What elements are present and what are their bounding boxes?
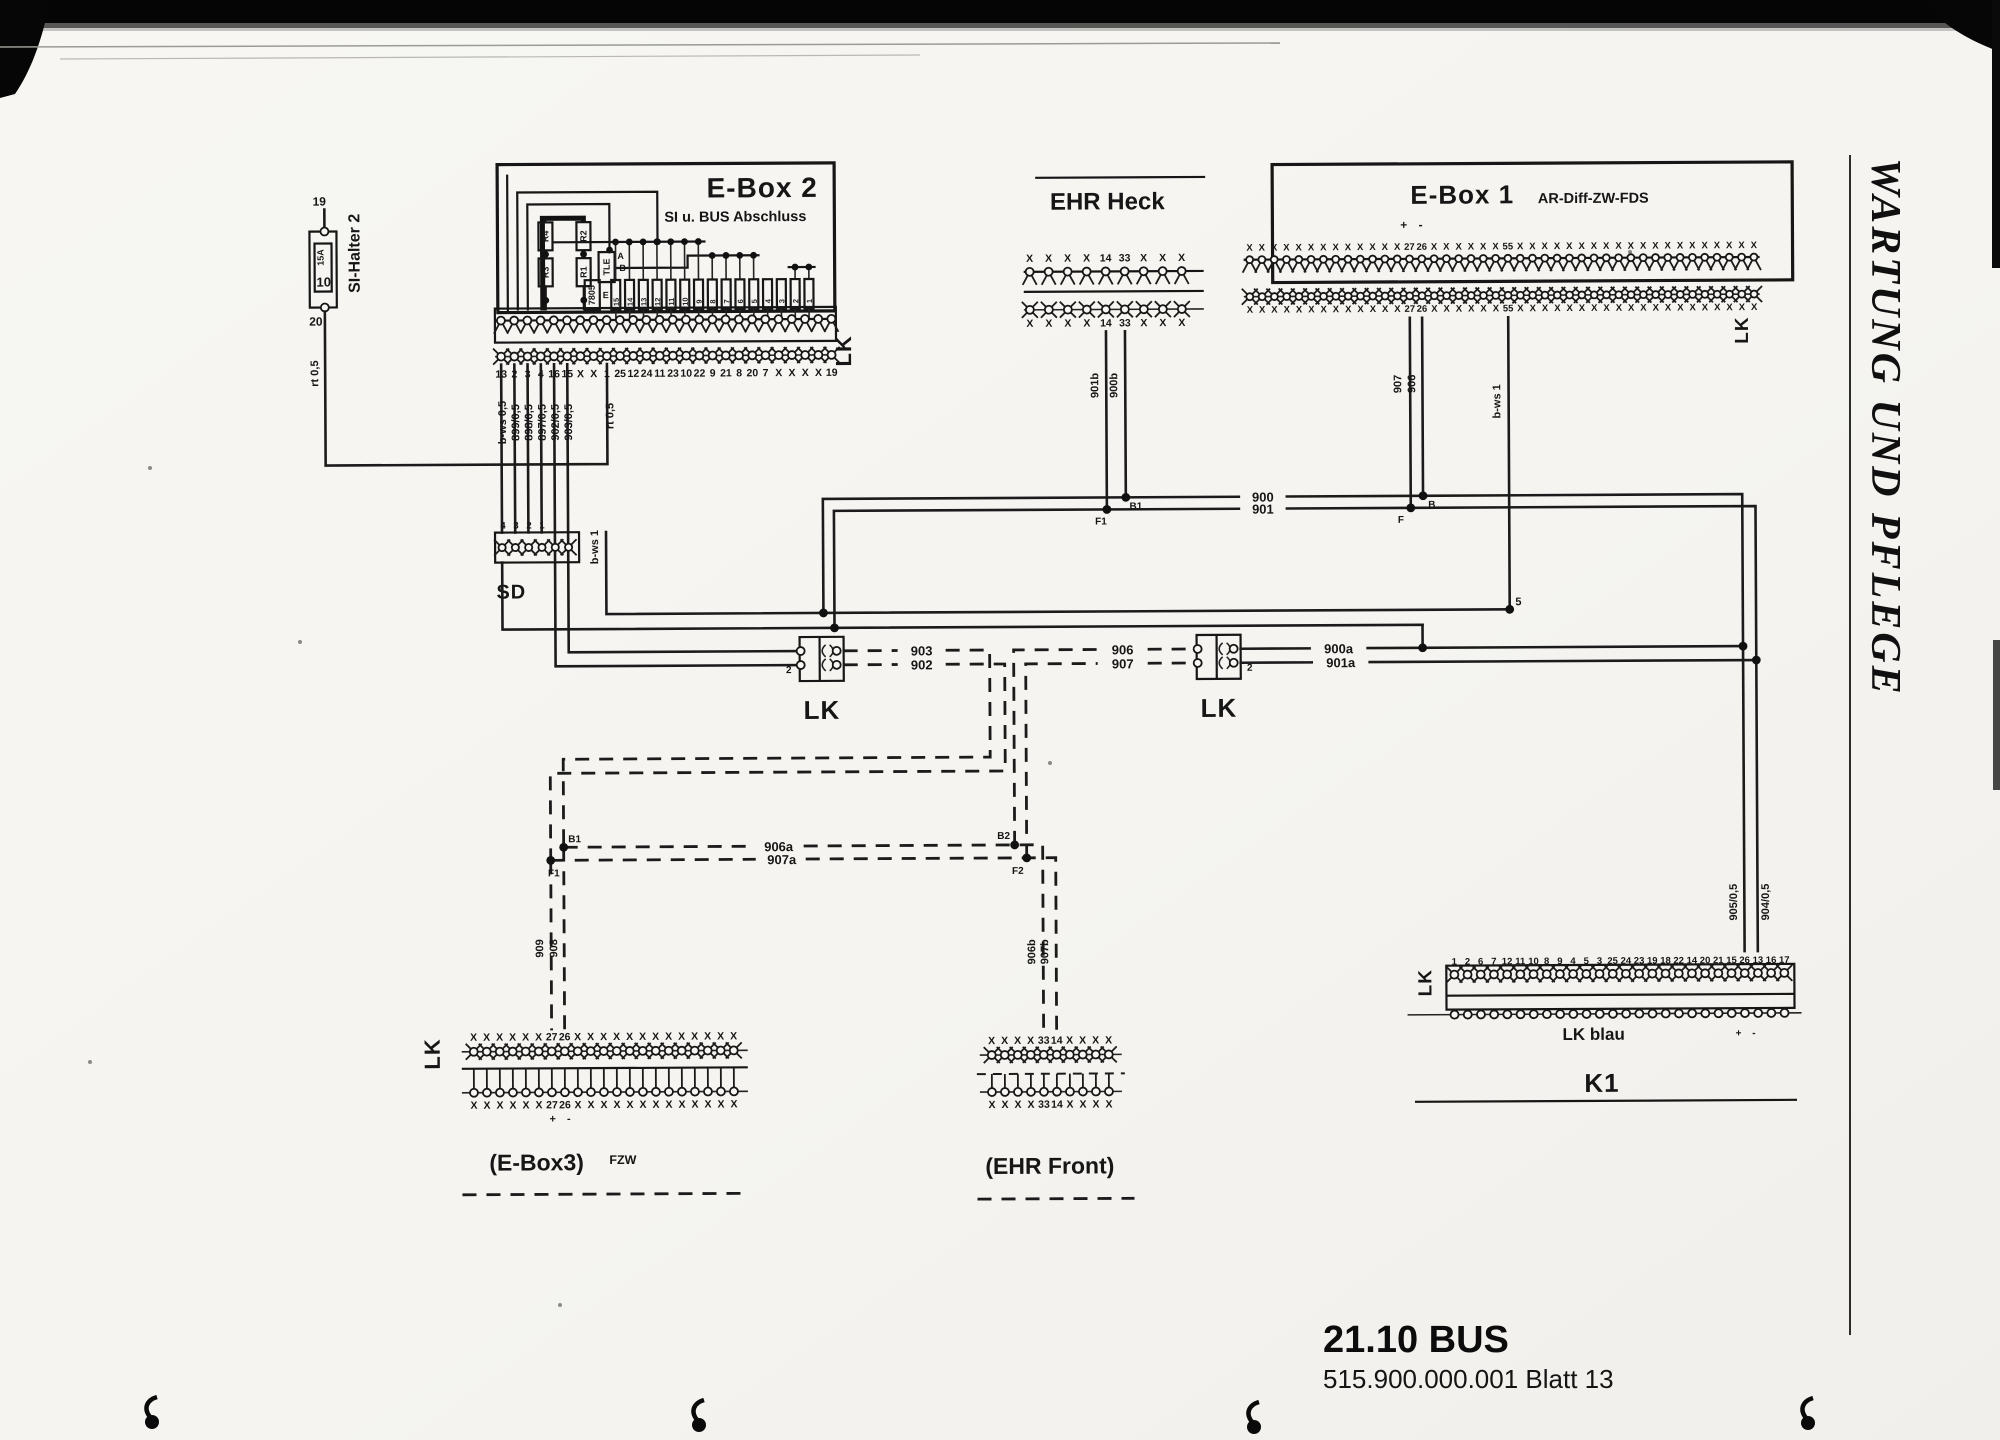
pin [1102,305,1110,313]
pin [1102,267,1110,275]
coupler-outline [800,637,844,681]
pin [1675,1009,1683,1017]
lk-coupler-right: 906 907 2 LK 900a 901a [1014,632,1758,858]
pin-label: X [1665,302,1672,313]
pin-label: X [691,1031,698,1043]
pin-label: X [1026,318,1033,330]
pin-label: X [1517,241,1524,252]
pin-label: 21 [720,367,732,379]
pin [535,1047,543,1055]
pin [1554,292,1561,299]
pin-label: 19 [826,367,838,379]
pin-label: X [1652,241,1659,252]
top-scan-bar-edge [0,23,2000,28]
junction-dot [1010,841,1019,850]
pin [761,351,769,359]
wire-907a-907b [551,858,1057,1033]
pin [1083,306,1091,314]
pin [1615,254,1622,261]
pin-label: X [1591,241,1598,252]
pin-label: 16 [1766,955,1777,966]
junction-dot [640,238,647,245]
junction-dot [1121,493,1130,502]
pin [1556,1010,1564,1018]
pin [1662,1009,1670,1017]
pin-label: 33 [1119,252,1131,264]
pin-label: X [1083,253,1090,265]
pin [629,316,637,324]
pin-label: X [1493,303,1500,314]
pin [1345,293,1352,300]
pin [1455,292,1462,299]
pin [1464,1011,1472,1019]
pin-label: 26 [1416,242,1427,253]
pin [1664,291,1671,298]
pin-label: X [1677,302,1684,313]
pin [1064,306,1072,314]
pin [669,352,677,360]
pin [574,1088,582,1096]
pin-label: X [1726,240,1733,251]
pin-label: X [1689,302,1696,313]
pin [988,1088,996,1096]
ehr-front-title: (EHR Front) [985,1152,1114,1179]
pin [1591,291,1598,298]
pin [1092,1087,1100,1095]
pin [320,228,328,236]
pin-label: 33 [1038,1035,1050,1047]
junction-dot [580,297,587,304]
pin [1092,1050,1100,1058]
pin [1230,645,1238,653]
pin [1194,659,1202,667]
pin [1431,292,1438,299]
si-halter-title: SI-Halter 2 [346,214,363,293]
wire-bws1-run [606,527,1510,614]
fuse-number: 13 [639,298,648,306]
wire-label-900b: 900b [1108,373,1120,398]
pin-label: X [1247,305,1254,316]
pin [522,1088,530,1096]
pin-label: 25 [614,368,626,380]
wire-908 [564,847,565,1030]
fuse-number: 6 [736,299,745,303]
wire-label-906: 906 [1112,642,1134,657]
pin [1609,970,1617,978]
pin [814,351,822,359]
pin-label: X [1271,305,1278,316]
pin [1320,256,1327,263]
pin-label: 23 [1634,956,1645,967]
pin [788,315,796,323]
pin [775,351,783,359]
pin [708,315,716,323]
pin [600,1088,608,1096]
k1-pin-row-top: 1267121110894532524231918221420211526131… [1446,955,1792,983]
sd-pin-label: 2 [526,520,531,531]
pin [1664,254,1671,261]
side-title: WARTUNG UND PFLEGE [1862,158,1908,697]
sd-pin-label: 1 [539,520,545,531]
top-left-blob [0,0,50,98]
pin [748,351,756,359]
junction-dot [819,609,828,618]
pin [1121,305,1129,313]
pin-label: 7 [763,367,769,379]
paper-specks [88,250,1632,1307]
pin [1622,1010,1630,1018]
fuse [694,280,703,310]
pin-label: X [626,1031,633,1043]
scanned-page: WARTUNG UND PFLEGE 21.10 BUS 515.900.000… [0,0,2000,1440]
pin-label: X [1320,242,1327,253]
staple-mark [1801,1398,1815,1430]
pin-label: X [535,1031,542,1043]
wire-label-904: 904/0,5 [1760,884,1772,921]
pin-label: 33 [1038,1099,1050,1111]
pin-label: X [1001,1035,1008,1047]
pin [1714,969,1722,977]
pin-label: X [1140,317,1147,329]
pin [1140,267,1148,275]
dashed-underline [462,1193,750,1195]
coupler-pin-label: 2 [1247,663,1253,674]
pin [1738,254,1745,261]
pin-label: X [1726,302,1733,313]
pin-label: 9 [1557,956,1562,967]
pin-label: 26 [1417,304,1428,315]
pin [1490,1010,1498,1018]
pin [704,1088,712,1096]
pin-label: X [1064,318,1071,330]
inner-wall [507,175,508,313]
pin [1578,291,1585,298]
pin [652,1047,660,1055]
pin [1640,291,1647,298]
pin-label: X [1178,317,1185,329]
pin-label: X [1517,303,1524,314]
pin [498,544,505,551]
e-box-3: XXXXXX2726XXXXXXXXXXXXX XXXXXX2726XXXXXX… [420,1030,751,1195]
ebox1-connector-label: LK [1732,316,1753,343]
pin-label: X [1159,252,1166,264]
pin [1750,254,1757,261]
pin-label: X [1665,240,1672,251]
pin [1569,1010,1577,1018]
separator-line [462,1067,748,1068]
pin [833,661,841,669]
ebox2-sd-wires: b-ws 0,5 899/0,5 898/0,5 897/0,5 902/0,5… [497,363,800,667]
fuse-number: 2 [791,299,800,303]
k1-row-label: LK blau [1562,1025,1624,1044]
wire-label-907a: 907a [767,852,797,867]
pin [678,1047,686,1055]
pin [1246,293,1253,300]
pin [1027,1051,1035,1059]
junction-dot [1505,605,1514,614]
wire-label-907: 907 [1392,375,1404,393]
pin-label: X [1079,1099,1086,1111]
dashed-underline [978,1198,1135,1199]
pin [1455,255,1462,262]
pin-label: X [1616,303,1623,314]
pin-label: X [1677,240,1684,251]
pin [1714,291,1721,298]
pin-label: X [1066,1035,1073,1047]
scan-artifacts [0,0,2000,1434]
pin [616,352,624,360]
pin-label: 7 [1491,956,1496,967]
pin-label: X [815,367,822,379]
wire-902 [554,363,800,666]
pin [797,647,805,655]
wire-906 [1422,318,1423,496]
e-box-1: E-Box 1 AR-Diff-ZW-FDS + - XXXXXXXXXXXXX… [1241,162,1794,611]
pin [730,1046,738,1054]
pin [1406,292,1413,299]
pin-label: X [509,1100,516,1112]
pin [1283,256,1290,263]
pin [682,316,690,324]
pin-label: X [496,1100,503,1112]
run-906a-907a: 906a 907a 909 908 906b 907b B1 F1 B2 F2 [534,831,1057,1033]
pin [523,316,531,324]
coupler-pin-label: 2 [786,665,792,676]
pin-label: X [483,1032,490,1044]
pin [1652,291,1659,298]
pin [616,316,624,324]
pin [1344,256,1351,263]
ebox2-pin-row-top [494,315,839,334]
pin [1741,969,1749,977]
pin [695,316,703,324]
pin [509,1048,517,1056]
wire-903-dashed [563,650,991,847]
junction-dot [559,843,568,852]
pin-label: 21 [1713,955,1724,966]
pin [1480,255,1487,262]
wire-label-rt05-pin1: rt 0,5 [604,403,616,429]
pin [1648,970,1656,978]
pin [1040,1088,1048,1096]
pin-label: X [1045,318,1052,330]
junction-dot [1418,643,1427,652]
pin-label: X [1159,317,1166,329]
pin [1689,254,1696,261]
pin [678,1088,686,1096]
pin [1159,305,1167,313]
pin-label: X [717,1098,724,1110]
side-panel: WARTUNG UND PFLEGE [1850,155,1908,1335]
pin-label: 25 [1607,956,1618,967]
wire-901a [1241,660,1757,663]
right-edge-strip [1992,0,2000,268]
pin [1688,969,1696,977]
wire-900 [823,494,1745,956]
pin [626,1047,634,1055]
pin [1556,970,1564,978]
pin [1014,1051,1022,1059]
fuse-number: 14 [626,297,635,306]
pin [1418,255,1425,262]
pin [1689,291,1696,298]
pin [470,1089,478,1097]
lk-coupler-left: 2 LK 903 902 [550,636,1006,860]
pin-label: X [613,1031,620,1043]
fuse [804,279,813,309]
pin [1053,1088,1061,1096]
wire-label-907: 907 [1112,656,1134,671]
k1-connector: 1267121110894532524231918221420211526131… [1407,955,1802,1102]
pin-label: X [1628,241,1635,252]
pin-label: X [1045,253,1052,265]
pin [537,316,545,324]
e-box-2-subtitle: SI u. BUS Abschluss [664,209,806,226]
pin [1159,267,1167,275]
pin-label: X [600,1099,607,1111]
top-scan-shadow [0,28,2000,31]
wire-bws05-run [502,558,1422,630]
pin-label: 20 [746,367,758,379]
pin [988,1051,996,1059]
pin [1332,256,1339,263]
junction-label-b1: B1 [1129,501,1142,512]
pin [550,352,558,360]
ehr-front: XXXX3314XXXX XXXX3314XXXX (EHR Front) [977,1034,1135,1199]
pin [1418,292,1425,299]
pin [1369,293,1376,300]
ebox2-pin-row-bottom: 132341615XX1251224112310229218207XXXX19 [493,347,840,381]
pin-label: X [704,1031,711,1043]
pin [524,352,532,360]
fuse [722,279,731,309]
pin [538,544,545,551]
junction-dot [580,251,587,258]
pin [1781,1009,1789,1017]
fuse-number: 11 [667,298,676,306]
k1-title: K1 [1584,1068,1619,1098]
pin [1504,255,1511,262]
pin-label: X [652,1031,659,1043]
pin [1662,969,1670,977]
pin [1635,970,1643,978]
pin-label: X [1739,302,1746,313]
pin [496,1089,504,1097]
pin [709,351,717,359]
pin [1738,291,1745,298]
pin-label: X [1640,303,1647,314]
fuse-number: 3 [777,299,786,303]
junction-dot [736,252,743,259]
junction-dot [298,640,302,644]
pin [563,352,571,360]
pin-label: X [509,1032,516,1044]
pin-label: 12 [1502,956,1513,967]
pin [1066,1051,1074,1059]
pin [1517,1010,1525,1018]
pin [522,1047,530,1055]
pin [704,1047,712,1055]
pin [1026,268,1034,276]
footer-title: 21.10 BUS [1323,1319,1509,1361]
pin-label: 6 [1478,956,1483,967]
pin [1530,1010,1538,1018]
wire-bundle [501,364,542,532]
pin [669,316,677,324]
junction-dot [546,856,555,865]
pin-label: 27 [1404,242,1415,253]
footer: 21.10 BUS 515.900.000.001 Blatt 13 [1323,1319,1614,1394]
pin-label: X [1751,240,1758,251]
pin-label: X [1014,1035,1021,1047]
separator-line [1024,291,1204,292]
pin [1066,1088,1074,1096]
pin [510,353,518,361]
pin [1431,255,1438,262]
wire-label: 898/0,5 [523,404,535,441]
pin [1467,255,1474,262]
junction-dot [792,264,799,271]
pin-label: X [652,1099,659,1111]
ebox3-pin-row-top: XXXXXX2726XXXXXXXXXXXXX [466,1030,742,1059]
pin-label: 26 [1739,955,1750,966]
pin-label: X [1246,243,1253,254]
wire-label-900a: 900a [1324,641,1354,656]
sd-connector: 4 3 2 1 SD b-ws 1 [494,520,601,604]
ebox3-title-suffix: FZW [609,1153,636,1167]
ebox3-title: (E-Box3) [489,1149,584,1175]
pin-label: 10 [680,368,692,380]
pin-label: X [1468,242,1475,253]
fuse [749,279,758,309]
pin [626,1088,634,1096]
pin-label: X [574,1099,581,1111]
wire-label: b-ws 0,5 [497,401,509,444]
pin [1529,292,1536,299]
junction-dot [1048,761,1052,765]
pin-label: 33 [1119,317,1131,329]
ebox3-pin-row-bottom: XXXXXX2726XXXXXXXXXXXXX [470,1067,738,1111]
pin-label: X [1751,302,1758,313]
junction-dot [88,1060,92,1064]
right-edge-strip-2 [1993,640,2000,790]
fuse-value: 10 [316,274,331,289]
pin-label: X [1603,303,1610,314]
pin [1045,268,1053,276]
pin [1014,1088,1022,1096]
staple-mark [145,1397,159,1429]
pin [665,1047,673,1055]
wire-label-903: 903 [911,643,933,658]
polarity-label: + - [1400,218,1426,232]
pin-label: X [1701,240,1708,251]
wire-label: 902/0,5 [550,404,562,441]
pin [1628,291,1635,298]
fuse-rating: 15A [316,249,326,266]
pin-label: X [1382,304,1389,315]
pin [1001,1088,1009,1096]
pin [1357,293,1364,300]
pin-label: X [590,368,597,380]
pin [1615,291,1622,298]
pin-label: X [1689,240,1696,251]
pin-label: X [1357,242,1364,253]
pin-label: X [988,1035,995,1047]
pin-label: X [1579,303,1586,314]
pin-label: X [1529,241,1536,252]
pin-label: X [1284,304,1291,315]
e-box-1-title: E-Box 1 [1410,179,1514,210]
